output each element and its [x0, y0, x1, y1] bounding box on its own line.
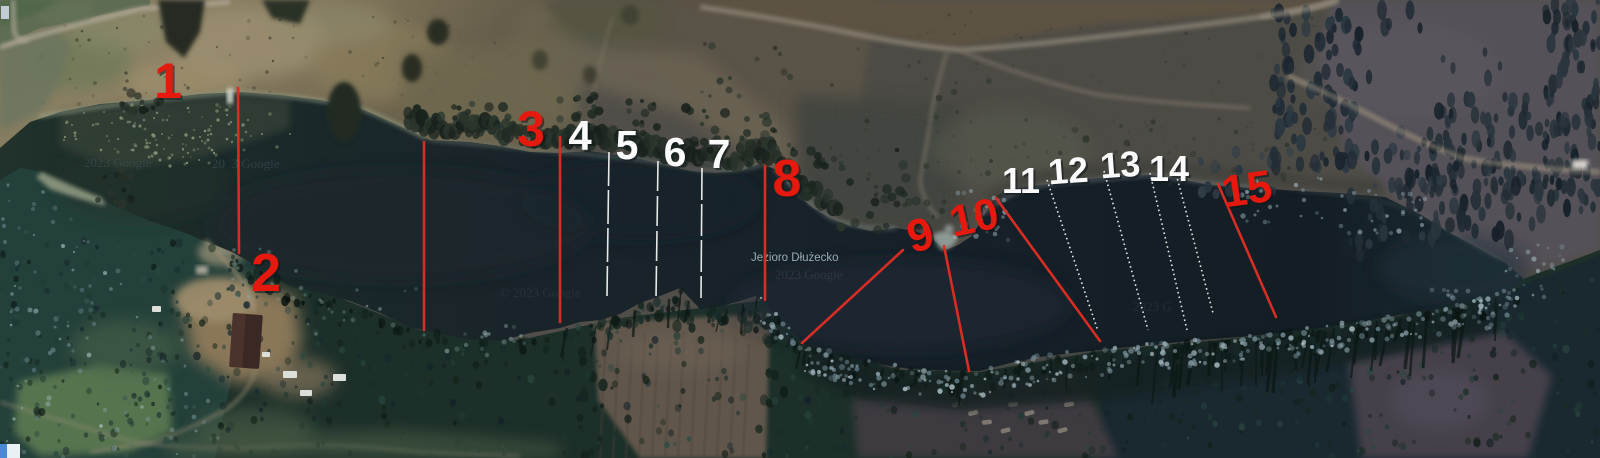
svg-text:2023 Google: 2023 Google: [84, 155, 152, 170]
svg-text:6: 6: [664, 129, 687, 175]
svg-text:12: 12: [1047, 149, 1090, 193]
svg-text:11: 11: [1002, 160, 1040, 201]
svg-text:4: 4: [568, 112, 592, 159]
svg-text:7: 7: [708, 131, 731, 177]
svg-text:13: 13: [1099, 143, 1142, 187]
svg-text:8: 8: [773, 150, 802, 208]
svg-text:2023 Google: 2023 Google: [775, 267, 843, 282]
svg-text:5: 5: [616, 122, 639, 168]
svg-text:10: 10: [945, 189, 1003, 247]
svg-text:© 2023 Google: © 2023 Google: [500, 285, 581, 300]
svg-text:20 3 Google: 20 3 Google: [212, 156, 280, 171]
svg-text:1: 1: [154, 53, 182, 109]
svg-text:2023 G: 2023 G: [1133, 299, 1172, 314]
svg-text:3: 3: [517, 101, 545, 157]
svg-text:15: 15: [1219, 160, 1276, 217]
svg-text:2: 2: [251, 243, 281, 303]
svg-text:14: 14: [1149, 148, 1189, 189]
